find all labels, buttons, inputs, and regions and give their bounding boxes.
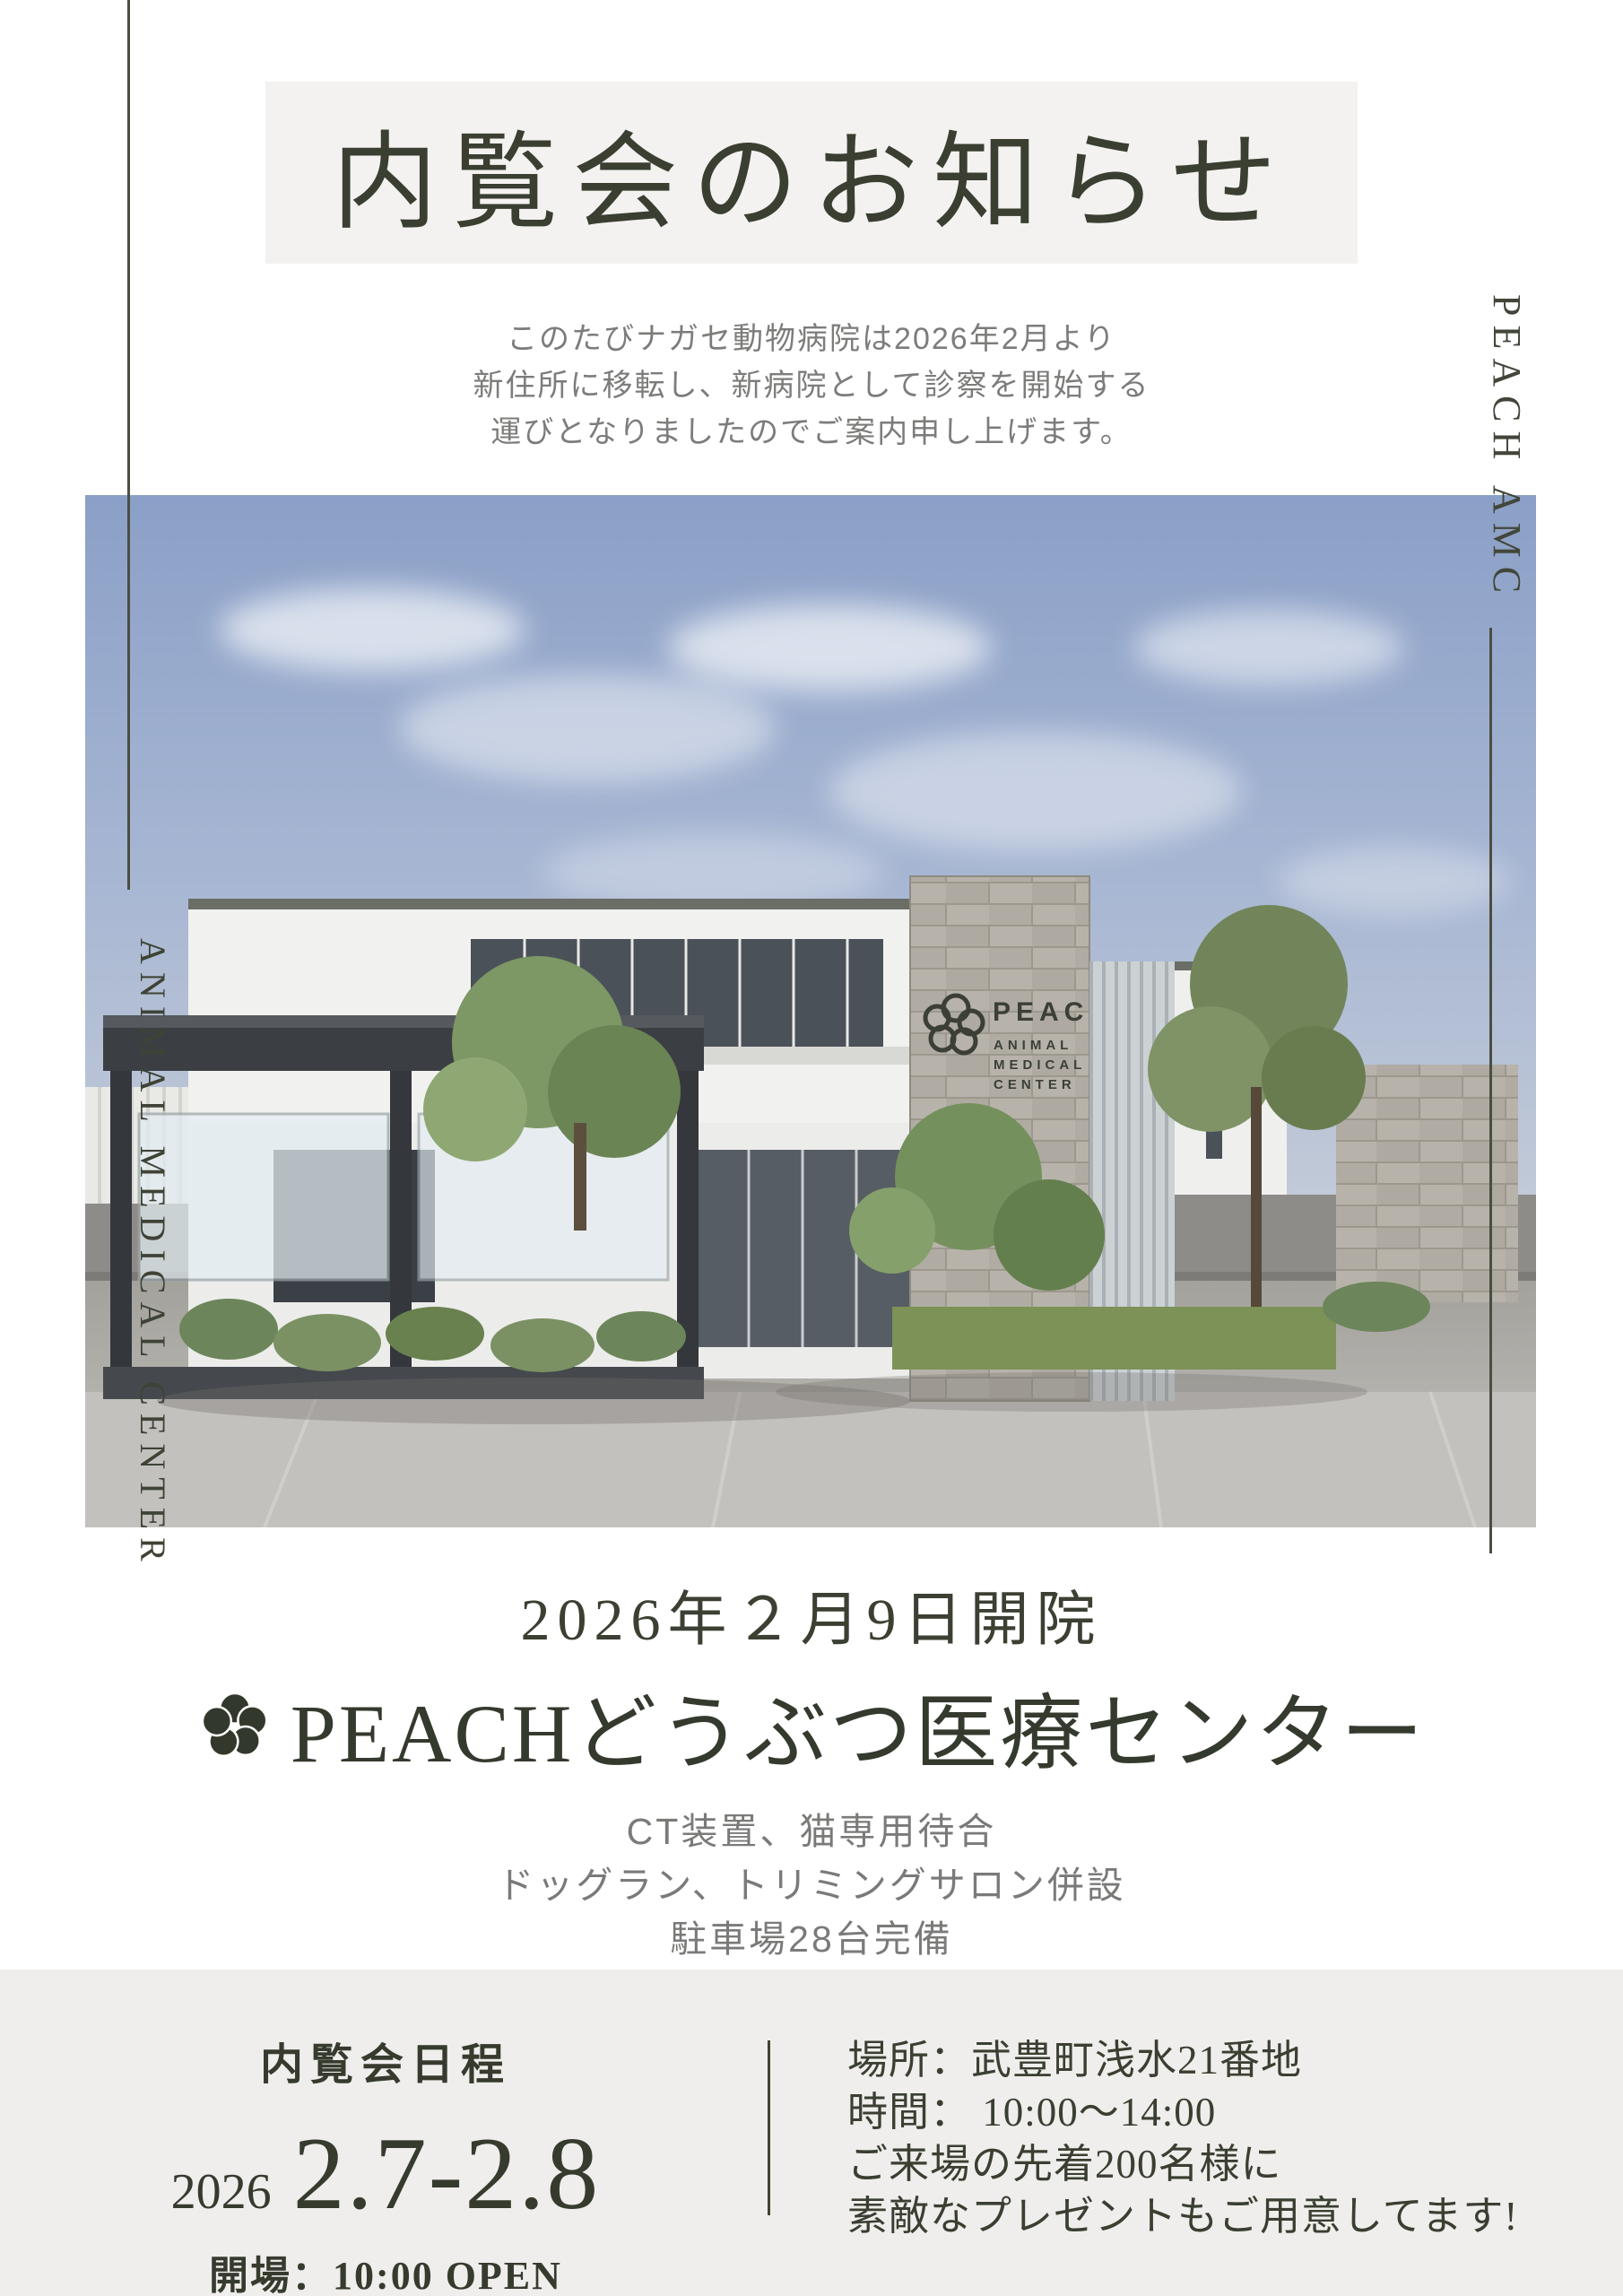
feature-line: CT装置、猫専用待合 xyxy=(0,1805,1623,1858)
clinic-title-row: PEACHどうぶつ医療センター xyxy=(0,1666,1623,1786)
schedule-dates-row: 2026 2.7-2.8 xyxy=(135,2115,637,2234)
event-details-block: 場所：武豊町浅水21番地 時間： 10:00〜14:00 ご来場の先着200名様… xyxy=(847,2034,1518,2242)
detail-line-time: 時間： 10:00〜14:00 xyxy=(847,2086,1518,2138)
flower-logo-icon xyxy=(197,1689,273,1764)
footer-info-section: 内覧会日程 2026 2.7-2.8 開場：10:00 OPEN 場所：武豊町浅… xyxy=(0,1970,1623,2296)
vertical-caption-right: PEACH AMC xyxy=(1451,294,1530,617)
announcement-line: このたびナガセ動物病院は2026年2月より xyxy=(0,316,1623,362)
detail-line-place: 場所：武豊町浅水21番地 xyxy=(847,2034,1518,2086)
sign-line3: CENTER xyxy=(994,1077,1076,1092)
title-banner: 内覧会のお知らせ xyxy=(265,82,1358,264)
schedule-heading: 内覧会日程 xyxy=(135,2029,637,2092)
schedule-year: 2026 xyxy=(171,2163,272,2221)
left-vertical-rule xyxy=(127,0,130,890)
feature-line: 駐車場28台完備 xyxy=(0,1912,1623,1966)
footer-divider xyxy=(768,2040,770,2215)
open-time-line: 開場：10:00 OPEN xyxy=(135,2243,637,2296)
announcement-line: 新住所に移転し、新病院として診察を開始する xyxy=(0,362,1623,409)
flyer-page: 内覧会のお知らせ このたびナガセ動物病院は2026年2月より 新住所に移転し、新… xyxy=(0,0,1623,2296)
announcement-paragraph: このたびナガセ動物病院は2026年2月より 新住所に移転し、新病院として診察を開… xyxy=(0,316,1623,456)
right-vertical-rule xyxy=(1489,628,1492,1553)
sign-line1: ANIMAL xyxy=(994,1038,1072,1053)
building-illustration: PEACH ANIMAL MEDICAL CENTER xyxy=(85,495,1536,1527)
schedule-days: 2.7-2.8 xyxy=(293,2115,601,2234)
detail-line-visitors: ご来場の先着200名様に xyxy=(847,2138,1518,2190)
feature-list: CT装置、猫専用待合 ドッグラン、トリミングサロン併設 駐車場28台完備 xyxy=(0,1805,1623,1966)
announcement-line: 運びとなりましたのでご案内申し上げます。 xyxy=(0,409,1623,456)
detail-line-present: 素敵なプレゼントもご用意してます! xyxy=(847,2190,1518,2242)
clinic-name: PEACHどうぶつ医療センター xyxy=(291,1666,1427,1786)
schedule-block: 内覧会日程 2026 2.7-2.8 開場：10:00 OPEN xyxy=(135,2029,637,2296)
page-title: 内覧会のお知らせ xyxy=(332,96,1291,249)
sign-line2: MEDICAL xyxy=(994,1057,1086,1073)
opening-date: 2026年２月9日開院 xyxy=(0,1571,1623,1657)
building-photo: PEACH ANIMAL MEDICAL CENTER xyxy=(85,495,1536,1527)
feature-line: ドッグラン、トリミングサロン併設 xyxy=(0,1858,1623,1912)
vertical-caption-left: ANIMAL MEDICAL CENTER xyxy=(95,938,174,1620)
